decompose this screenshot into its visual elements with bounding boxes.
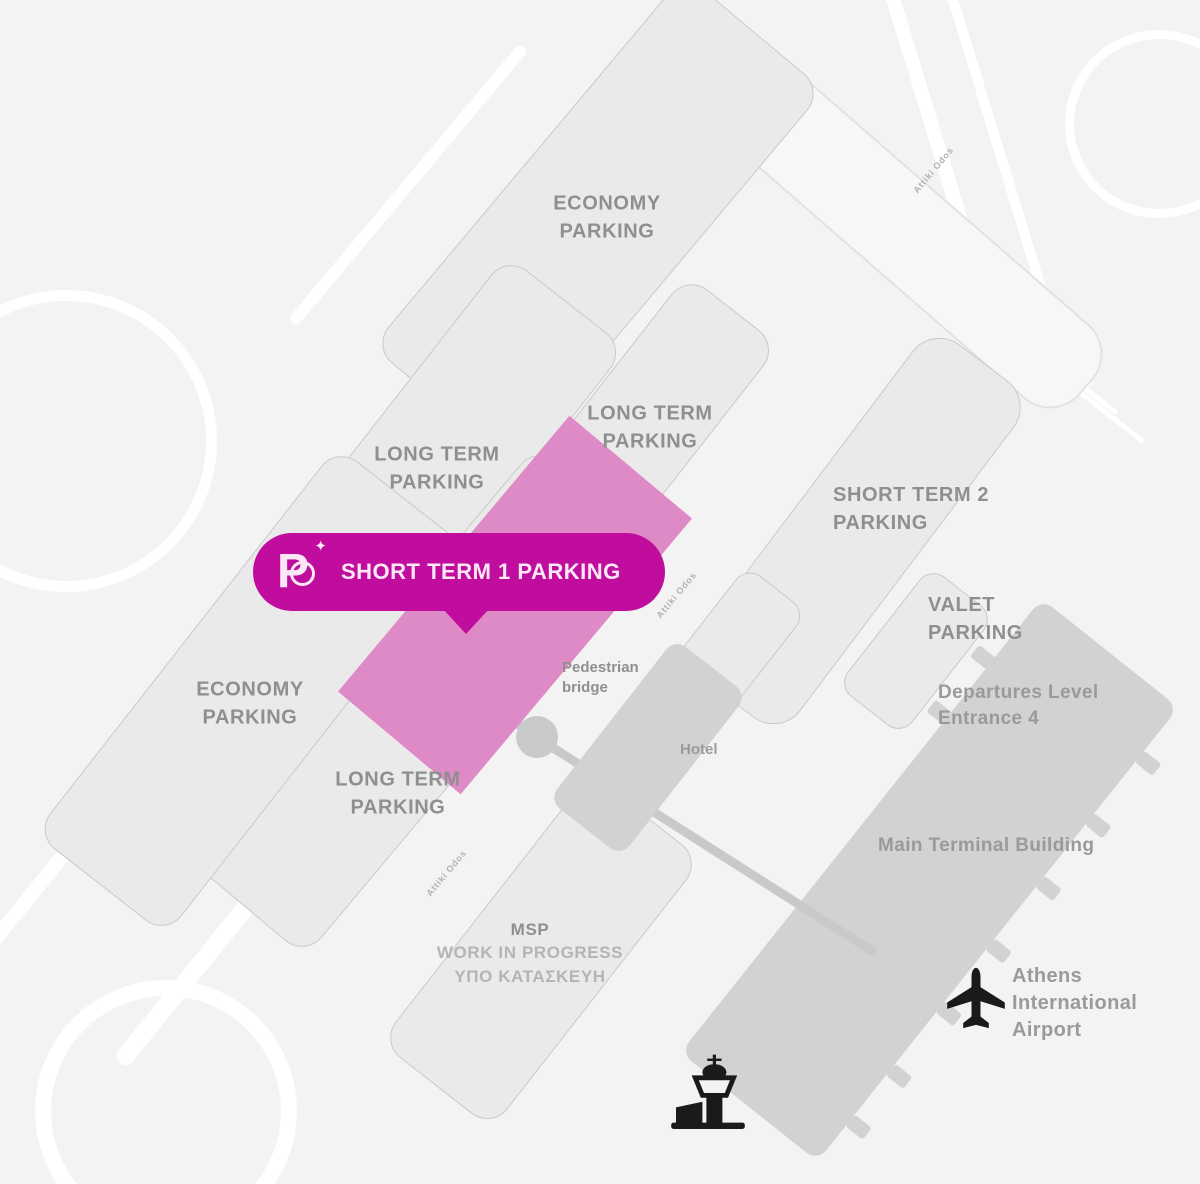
terminal-gate-stub: [986, 938, 1013, 963]
logo-ring: [290, 561, 315, 586]
label-line: Main Terminal Building: [878, 833, 1094, 859]
economy-parking-north-label: ECONOMY PARKING: [553, 190, 661, 245]
label-line: MSP: [437, 918, 623, 941]
label-line: Entrance 4: [938, 706, 1099, 732]
long-term-parking-mid-label: LONG TERM PARKING: [374, 441, 499, 496]
badge-label: SHORT TERM 1 PARKING: [341, 559, 621, 585]
msp-label: MSP WORK IN PROGRESS ΥΠΟ ΚΑΤΑΣΚΕΥΗ: [437, 918, 623, 988]
label-line: ECONOMY: [553, 190, 661, 218]
label-line: PARKING: [196, 704, 304, 732]
badge-pointer: [443, 609, 489, 634]
terminal-entrance-stub: [970, 645, 997, 670]
airport-name-label: Athens International Airport: [1012, 963, 1137, 1044]
economy-parking-south-label: ECONOMY PARKING: [196, 676, 304, 731]
hotel-label: Hotel: [680, 740, 718, 760]
label-line: ECONOMY: [196, 676, 304, 704]
label-line: WORK IN PROGRESS: [437, 941, 623, 964]
long-term-parking-south-label: LONG TERM PARKING: [335, 766, 460, 821]
label-line: ΥΠΟ ΚΑΤΑΣΚΕΥΗ: [437, 965, 623, 988]
pedestrian-bridge-label: Pedestrian bridge: [562, 658, 639, 697]
label-line: Hotel: [680, 740, 718, 760]
road: [0, 290, 217, 592]
label-line: LONG TERM: [374, 441, 499, 469]
short-term-2-parking-label: SHORT TERM 2 PARKING: [833, 482, 989, 537]
label-line: Athens: [1012, 963, 1137, 990]
label-line: Pedestrian: [562, 658, 639, 678]
valet-parking-label: VALET PARKING: [928, 592, 1023, 647]
airplane-icon: [944, 966, 1008, 1030]
sparkle-icon: ✦: [314, 537, 327, 555]
road: [1065, 30, 1200, 218]
label-line: PARKING: [587, 428, 712, 456]
long-term-parking-upper-label: LONG TERM PARKING: [587, 400, 712, 455]
label-line: Departures Level: [938, 680, 1099, 706]
label-line: International: [1012, 990, 1137, 1017]
road: [35, 980, 297, 1184]
terminal-gate-stub: [845, 1114, 872, 1139]
parking-logo-icon: P ✦: [273, 544, 325, 600]
label-line: LONG TERM: [335, 766, 460, 794]
label-line: Airport: [1012, 1017, 1137, 1044]
label-line: PARKING: [928, 620, 1023, 648]
main-terminal-label: Main Terminal Building: [878, 833, 1094, 859]
control-tower-icon: [668, 1052, 756, 1134]
terminal-gate-stub: [1135, 751, 1162, 776]
roundabout: [516, 716, 558, 758]
airport-parking-map: ECONOMY PARKING LONG TERM PARKING LONG T…: [0, 0, 1200, 1184]
label-line: PARKING: [335, 794, 460, 822]
terminal-gate-stub: [1035, 876, 1062, 901]
label-line: PARKING: [833, 510, 989, 538]
label-line: SHORT TERM 2: [833, 482, 989, 510]
label-line: PARKING: [553, 218, 661, 246]
label-line: bridge: [562, 678, 639, 698]
departures-entrance-label: Departures Level Entrance 4: [938, 680, 1099, 732]
label-line: VALET: [928, 592, 1023, 620]
terminal-gate-stub: [886, 1064, 913, 1089]
label-line: LONG TERM: [587, 400, 712, 428]
road-label: Attiki Odos: [424, 848, 468, 898]
label-line: PARKING: [374, 469, 499, 497]
short-term-1-badge[interactable]: P ✦ SHORT TERM 1 PARKING: [253, 533, 665, 611]
